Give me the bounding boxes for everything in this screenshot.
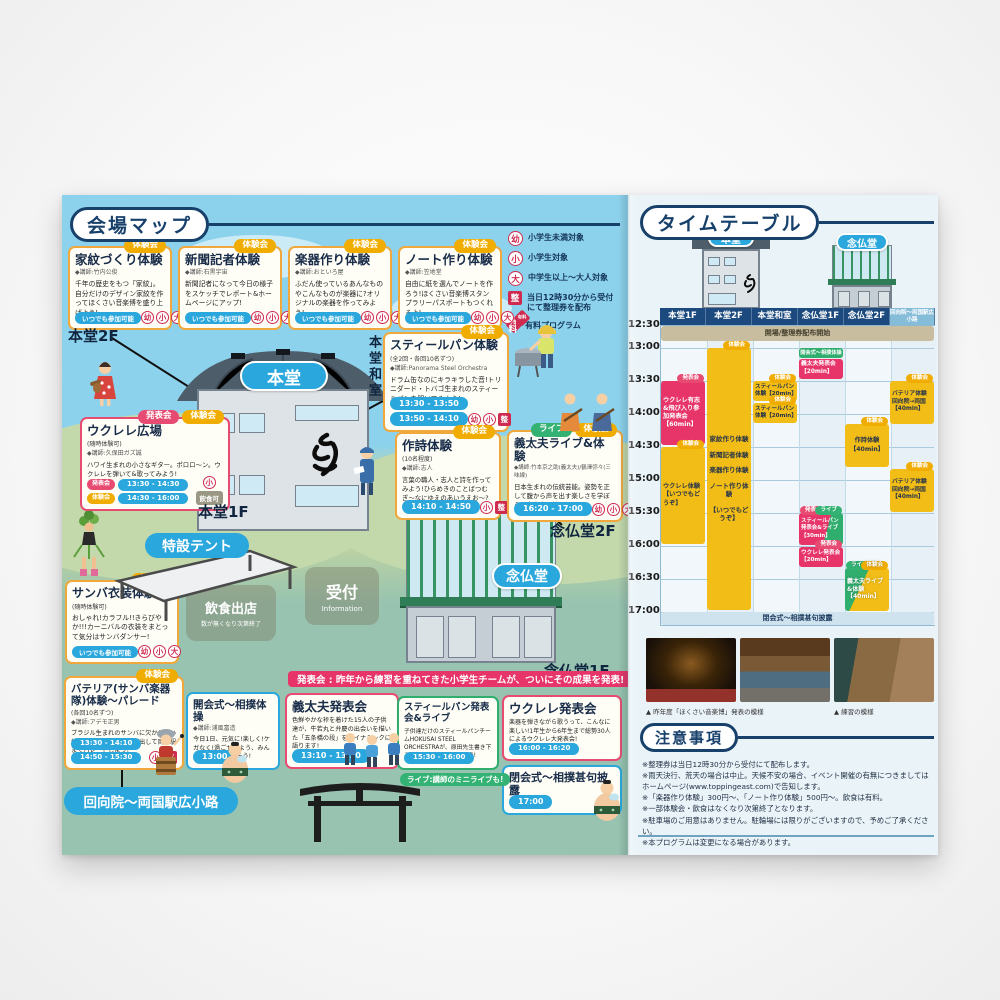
mini-hondo-illustration: 本堂 (698, 229, 764, 309)
taikenkai-badge: 体験会 (906, 374, 933, 383)
time-chip: 14:50 - 15:30 (71, 752, 141, 764)
age-elementary-icon: 小 (486, 311, 499, 324)
taikenkai-badge: 体験会 (453, 425, 495, 439)
anytime-pill: いつでも参加可能 (405, 312, 471, 324)
parade-route-label: 回向院〜両国駅広小路 (64, 787, 238, 815)
photo-steelpan-kids (740, 638, 830, 702)
age-elementary-icon: 小 (376, 311, 389, 324)
time-label: 15:00 (628, 473, 658, 484)
nenbutsudo-roof (400, 597, 562, 606)
reception-label-en: Information (322, 605, 363, 613)
age-preschool-icon: 幼 (361, 311, 374, 324)
time-chip: 13:30 - 14:10 (71, 738, 141, 750)
note-item: ※一部体験会・飲食はなくなり次第終了となります。 (642, 803, 932, 814)
nenbutsudo-building-label: 念仏堂 (492, 563, 562, 589)
nenbutsudo-building-illustration: 念仏堂 (400, 505, 562, 663)
time-label: 13:30 (628, 374, 658, 385)
photo-last-year-presentation (646, 638, 736, 702)
card-title: スティールパン体験 (390, 339, 502, 353)
card-instructor: ◆講師:アデモ正男 (71, 719, 177, 727)
reception-label: 受付 (326, 579, 358, 603)
age-elementary-icon: 小 (480, 501, 493, 514)
numbered-ticket-icon: 整 (495, 501, 508, 514)
page-title: 会場マップ (70, 207, 209, 242)
card-title: 新聞記者体験 (185, 253, 275, 267)
card-gidayu-live-workshop: ライブ体験会 義太夫ライブ&体験 ◆講師:竹本京之助(義太夫)/鶴澤弥々(三味線… (507, 430, 623, 522)
card-title: 家紋づくり体験 (75, 253, 165, 267)
children-illustration (340, 730, 404, 772)
time-chip: 17:00 (509, 795, 552, 809)
time-chip: 13:50 - 14:10 (390, 412, 468, 426)
age-preschool-icon: 幼 (592, 503, 605, 516)
taikenkai-badge: 体験会 (182, 410, 224, 424)
steelpan-player-illustration (512, 321, 564, 379)
legend-label: 中学生以上〜大人対象 (528, 271, 608, 283)
card-steelpan-workshop: 体験会 スティールパン体験 (全2回・各回10名ずつ) ◆講師:Panorama… (383, 332, 509, 432)
samba-dancer-illustration (70, 511, 110, 579)
note-item: ※雨天決行、荒天の場合は中止。天候不安の場合、イベント開催の有無につきましてはホ… (642, 770, 932, 792)
anytime-pill: いつでも参加可能 (75, 312, 141, 324)
column-header: 回向院〜両国駅広小路 (890, 308, 935, 325)
presentation-banner: 発表会 : 昨年から練習を重ねてきた小学生チームが、ついにその成果を発表! (288, 671, 628, 687)
title-rule (819, 221, 934, 224)
time-label: 14:00 (628, 407, 658, 418)
age-preschool-icon: 幼 (251, 311, 264, 324)
time-label: 12:30 (628, 319, 658, 330)
block-ukulele-presentation: 発表会 ウクレレ発表会【20min】 (799, 547, 843, 567)
column-header: 本堂2F (706, 308, 752, 325)
taikenkai-badge: 体験会 (769, 396, 796, 405)
card-title: ウクレレ発表会 (509, 702, 615, 716)
timetable-page: タイムテーブル 本堂 念仏堂 本堂1F 本堂2F (628, 195, 938, 855)
notes-title: 注意事項 (640, 723, 738, 752)
card-title: 開会式〜相撲体操 (193, 699, 273, 723)
column-header: 念仏堂1F (798, 308, 844, 325)
card-title: ノート作り体験 (405, 253, 495, 267)
live-badge: ライブ (815, 506, 842, 515)
legend-label: 小学生対象 (528, 251, 568, 263)
taikenkai-badge: 体験会 (861, 561, 888, 570)
legend-label: 当日12時30分から受付 にて整理券を配布 (527, 291, 613, 314)
card-instructor: ◆講師:志人 (402, 465, 494, 473)
taikenkai-badge: 体験会 (769, 374, 796, 383)
poet-illustration (352, 443, 382, 499)
time-chip: 15:30 - 16:00 (404, 752, 474, 764)
shamisen-players-illustration (554, 391, 624, 435)
mini-nenbutsudo-illustration: 念仏堂 (828, 235, 896, 309)
label-hondo-1f: 本堂1F (198, 501, 249, 522)
bottom-rule (638, 835, 934, 837)
tent-illustration (110, 547, 300, 625)
age-preschool-icon: 幼 (471, 311, 484, 324)
drummer-illustration (147, 727, 185, 783)
card-desc: 新聞記者になって今日の様子をスケッチでレポート&ホームページにアップ! (185, 280, 275, 309)
time-chip: 16:20 - 17:00 (514, 502, 592, 516)
photo-caption-right: ▲ 練習の模様 (834, 706, 874, 716)
taikenkai-badge: 体験会 (861, 417, 888, 426)
time-label: 14:30 (628, 440, 658, 451)
card-desc: 言葉の職人・志人と詩を作ってみよう!ひらめきのことばつむぎ〜なにゆえのあいうえお… (402, 476, 494, 503)
photo-caption-left: ▲ 昨年度「ほくさい音楽博」発表の模様 (646, 706, 764, 716)
taikenkai-badge: 体験会 (906, 462, 933, 471)
note-item: ※「楽器作り体験」300円〜、「ノート作り体験」500円〜。飲食は有料。 (642, 792, 932, 803)
block-opening-ceremony: 開会式〜相撲体操 (799, 348, 843, 358)
age-preschool-icon: 幼 (138, 645, 151, 658)
age-elementary-icon: 小 (508, 251, 523, 266)
anytime-pill: いつでも参加可能 (72, 646, 138, 658)
card-capacity: (各回10名ずつ) (71, 708, 177, 717)
label-hondo-washitsu: 本堂和室 (364, 335, 383, 399)
card-instructor: ◆講師:竹本京之助(義太夫)/鶴澤弥々(三味線) (514, 465, 616, 479)
card-poetry-workshop: 体験会 作詩体験 (10名程度) ◆講師:志人 言葉の職人・志人と詩を作ってみよ… (395, 432, 501, 520)
time-label: 16:00 (628, 539, 658, 550)
note-item: ※駐車場のご用意はありません。駐輪場には限りがございますので、予めご了承ください… (642, 815, 932, 837)
card-ukulele-presentation: ウクレレ発表会 楽器を弾きながら歌うって、こんなに楽しい!1年生から6年生まで総… (502, 695, 622, 761)
note-item: ※整理券は当日12時30分から受付にて配布します。 (642, 759, 932, 770)
age-adult-icon: 大 (168, 645, 181, 658)
special-tent-label: 特設テント (145, 533, 249, 558)
card-title: 義太夫ライブ&体験 (514, 437, 616, 463)
temple-emblem (307, 431, 347, 479)
time-chip: 14:10 - 14:50 (402, 500, 480, 514)
card-instructor: ◆講師:おといろ屋 (295, 269, 385, 277)
card-instructor: ◆講師:竹内公俊 (75, 269, 165, 277)
title-rule (738, 736, 934, 739)
taikenkai-badge: 体験会 (136, 669, 178, 683)
time-chip: 16:00 - 16:20 (509, 743, 579, 755)
age-elementary-icon: 小 (153, 645, 166, 658)
block-gidayu-live: ライブ 体験会 義太夫ライブ&体験【40min】 (845, 568, 889, 611)
card-capacity: (10名程度) (402, 454, 494, 463)
card-capacity: (全2回・各回10名ずつ) (390, 354, 502, 363)
card-kamon-workshop: 体験会 家紋づくり体験 ◆講師:竹内公俊 千年の歴史をもつ「家紋」。自分だけのデ… (68, 246, 172, 330)
card-desc: 楽器を弾きながら歌うって、こんなに楽しい!1年生から6年生まで総勢30人によるウ… (509, 719, 615, 744)
happyokai-badge: 発表会 (677, 374, 704, 383)
time-label: 17:00 (628, 605, 658, 616)
age-adult-icon: 大 (508, 271, 523, 286)
numbered-ticket-icon: 整 (508, 291, 522, 305)
card-title: バテリア(サンバ楽器隊)体験〜パレード (71, 683, 177, 707)
card-title: 作詩体験 (402, 439, 494, 453)
taikenkai-badge: 体験会 (461, 325, 503, 339)
mini-live-note: ライブ:講師のミニライブも! (400, 773, 510, 786)
photo-background: 会場マップ 幼小学生未満対象 小小学生対象 大中学生以上〜大人対象 整当日12時… (0, 0, 1000, 1000)
hondo-building-label: 本堂 (240, 361, 328, 391)
age-adult-icon: 大 (622, 503, 628, 516)
block-hondo2f-workshops: 体験会 家紋作り体験新聞記者体験 楽器作り体験ノート作り体験 【いつでもどうぞ】 (707, 348, 751, 610)
card-title: スティールパン発表会&ライブ (404, 703, 492, 725)
happyokai-badge: 発表会 (87, 479, 115, 490)
block-bateria-parade-2: 体験会 バテリア体験 回向院→両国【40min】 (890, 469, 934, 512)
age-preschool-icon: 幼 (141, 311, 154, 324)
temple-emblem (742, 273, 758, 293)
age-elementary-icon: 小 (266, 311, 279, 324)
card-steelpan-presentation: スティールパン発表会&ライブ 子供達だけのスティールパンチームHOKUSAI S… (397, 696, 499, 770)
numbered-ticket-icon: 整 (498, 413, 511, 426)
taikenkai-badge: 体験会 (677, 440, 704, 449)
card-instructor: ◆講師:Panorama Steel Orchestra (390, 365, 502, 373)
card-title: 楽器作り体験 (295, 253, 385, 267)
card-notebook-making: 体験会 ノート作り体験 ◆講師:笠地堂 自由に紙を選んでノートを作ろう!ほくさい… (398, 246, 502, 330)
card-instructor: ◆講師:笠地堂 (405, 269, 495, 277)
column-header: 本堂1F (660, 308, 706, 325)
time-chip: 13:30 - 14:30 (118, 479, 188, 491)
happyokai-badge: 発表会 (138, 410, 180, 424)
block-bateria-parade-1: 体験会 バテリア体験 回向院→両国【40min】 (890, 381, 934, 424)
photo-practice (834, 638, 934, 702)
block-steelpan-workshop-2: 体験会 スティールパン体験【20min】 (753, 403, 797, 423)
venue-map-page: 会場マップ 幼小学生未満対象 小小学生対象 大中学生以上〜大人対象 整当日12時… (62, 195, 628, 855)
time-label: 16:30 (628, 572, 658, 583)
time-chip: 14:30 - 16:00 (118, 493, 188, 505)
age-elementary-icon: 小 (156, 311, 169, 324)
taikenkai-badge: 体験会 (87, 493, 115, 504)
column-header: 本堂和室 (752, 308, 798, 325)
age-elementary-icon: 小 (607, 503, 620, 516)
age-elementary-icon: 小 (203, 476, 216, 489)
block-ukulele-openmic: 発表会 ウクレレ有志&飛び入り参加発表会【60min】 (661, 381, 705, 445)
card-instructor: ◆講師:石黒宇宙 (185, 269, 275, 277)
note-item: ※本プログラムは変更になる場合があります。 (642, 837, 932, 848)
ukulele-girl-illustration (90, 359, 120, 409)
sumo-wrestler-illustration (218, 741, 252, 785)
sumo-wrestler-illustration (590, 779, 624, 823)
card-newspaper-workshop: 体験会 新聞記者体験 ◆講師:石黒宇宙 新聞記者になって今日の様子をスケッチでレ… (178, 246, 282, 330)
reception-box: 受付 Information (305, 567, 379, 625)
card-title: ウクレレ広場 (87, 424, 223, 438)
page-title: タイムテーブル (640, 205, 819, 240)
time-label: 13:00 (628, 341, 658, 352)
card-instructor: ◆講師:久保田ガズ誠 (87, 450, 223, 458)
brochure-sheet: 会場マップ 幼小学生未満対象 小小学生対象 大中学生以上〜大人対象 整当日12時… (62, 195, 938, 855)
card-instructor: ◆講師:浦風富造 (193, 725, 273, 733)
anytime-pill: いつでも参加可能 (185, 312, 251, 324)
block-poetry-workshop: 体験会 作詩体験【40min】 (845, 424, 889, 467)
label-hondo-2f: 本堂2F (68, 325, 119, 346)
block-ukulele-workshop: 体験会 ウクレレ体験【いつでもどうぞ】 (661, 447, 705, 544)
card-capacity: (随時体験可) (87, 439, 223, 448)
card-instrument-making: 体験会 楽器作り体験 ◆講師:おといろ屋 ふだん使っているあんなものやこんなもの… (288, 246, 392, 330)
time-label: 15:30 (628, 506, 658, 517)
block-opening: 開場/整理券配布開始 (661, 326, 934, 341)
title-rule (209, 223, 620, 226)
column-header: 念仏堂2F (844, 308, 890, 325)
happyokai-badge: 発表会 (815, 540, 842, 549)
anytime-pill: いつでも参加可能 (295, 312, 361, 324)
time-chip: 13:30 - 13:50 (390, 397, 468, 411)
label-nenbutsudo-2f: 念仏堂2F (550, 520, 616, 541)
taikenkai-badge: 体験会 (723, 341, 750, 350)
block-closing: 閉会式〜相撲甚句披露 (661, 612, 934, 625)
card-ukulele-plaza: 発表会体験会 ウクレレ広場 (随時体験可) ◆講師:久保田ガズ誠 ハワイ生まれの… (80, 417, 230, 511)
card-title: 義太夫発表会 (292, 700, 392, 714)
block-gidayu-presentation: 義太夫発表会【20min】 (799, 359, 843, 379)
